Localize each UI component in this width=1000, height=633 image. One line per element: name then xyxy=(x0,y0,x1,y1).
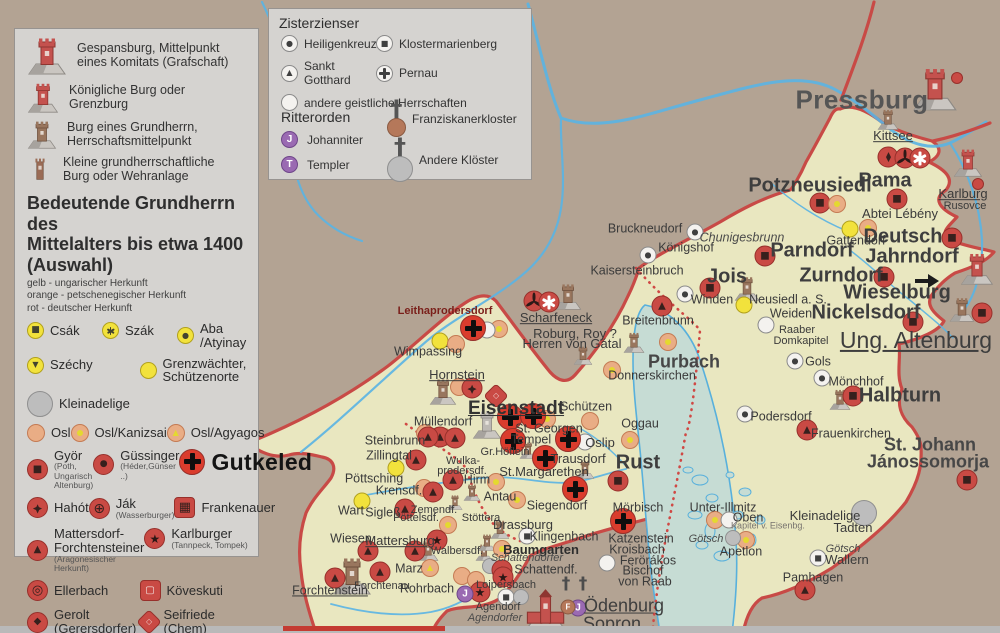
r-tri-marker: ▲ xyxy=(797,420,818,441)
knights-block: Ritterorden JJohanniterTTempler xyxy=(281,109,363,181)
w-sq-marker: ■ xyxy=(810,550,827,567)
monastery-entry-label: Franziskanerkloster xyxy=(412,112,517,126)
bottom-red-segment xyxy=(283,626,445,631)
knights-entry-johanniter: JJohanniter xyxy=(281,131,363,148)
legend-castle-item: Kleine grundherrschaftliche Burg oder We… xyxy=(27,155,250,183)
legend-lords-row: ■CsákSzák●Aba /Atyinay xyxy=(27,322,252,349)
o-marker xyxy=(447,335,465,353)
gray-marker xyxy=(513,589,529,605)
knights-entry-label: Templer xyxy=(307,158,350,172)
r-dot-icon: ● xyxy=(93,454,114,475)
o-marker xyxy=(581,412,599,430)
r-tri-marker: ▲ xyxy=(370,562,391,583)
orders-entry-label: Pernau xyxy=(399,66,438,80)
o-icon xyxy=(27,424,45,442)
gray-lg-marker xyxy=(851,500,877,526)
r-plain-marker xyxy=(951,72,963,84)
w-marker xyxy=(758,317,775,334)
castle-red-icon xyxy=(912,65,958,111)
r-sq-marker: ■ xyxy=(874,267,895,288)
legend-entry-frankenauer: ▦Frankenauer xyxy=(174,497,275,518)
o-dot-icon xyxy=(71,424,89,442)
o-dot-marker xyxy=(828,195,846,213)
orders-entry-pernau: Pernau xyxy=(376,59,531,87)
lords-title-line1: Bedeutende Grundherrn des xyxy=(27,193,235,234)
r-cross-marker xyxy=(460,315,486,341)
orders-entry-sankt-gotthard: ▲Sankt Gotthard xyxy=(281,59,376,87)
p-j-marker: J xyxy=(457,586,474,603)
legend-lords-row: Kleinadelige xyxy=(27,391,252,417)
r-tri-marker: ▲ xyxy=(445,428,466,449)
legend-entry-cs-k: ■Csák xyxy=(27,322,102,339)
legend-castle-item: Gespansburg, Mittelpunkt eines Komitats … xyxy=(27,35,250,75)
castle-red xyxy=(27,81,59,113)
y-marker xyxy=(388,460,405,477)
legend-entry-kleinadelige: Kleinadelige xyxy=(27,391,252,417)
r-cross-icon xyxy=(179,449,205,475)
legend-entry-label: Osl/Kanizsai xyxy=(95,425,167,440)
w-sq-marker: ■ xyxy=(519,528,536,545)
o-dot-marker xyxy=(493,540,511,558)
legend-entry-label: Gutkeled xyxy=(211,449,312,475)
knights-entry-label: Johanniter xyxy=(307,133,363,147)
legend-castle-label: Burg eines Grundherrn, Herrschaftsmittel… xyxy=(67,120,237,148)
r-cross-marker xyxy=(555,426,581,452)
orders-entry-klostermarienberg: ■Klostermarienberg xyxy=(376,35,531,52)
r-star-marker: ★ xyxy=(427,530,448,551)
o-dot-marker xyxy=(659,333,677,351)
br-f-marker: F xyxy=(561,600,576,615)
y-marker xyxy=(354,493,371,510)
r-cross-marker xyxy=(500,428,526,454)
knights-title: Ritterorden xyxy=(281,109,363,125)
legend-entry-j-k: ⊕Ják(Wasserburger) xyxy=(89,497,175,520)
legend-entry-sublabel: (Aragonesischer Herkunft) xyxy=(54,555,144,574)
w-marker xyxy=(599,555,616,572)
y-dot-icon: ● xyxy=(177,327,194,344)
legend-entry-osl-agyagos: ▲Osl/Agyagos xyxy=(167,424,265,442)
legend-entry-hah-t: ◆◆Hahót xyxy=(27,497,89,518)
rsq-wsq-icon: ▢ xyxy=(140,580,161,601)
w-cross-icon xyxy=(376,65,393,82)
legend-entry-mattersdorf-forchtensteiner: ▲Mattersdorf-Forchtensteiner(Aragonesisc… xyxy=(27,527,144,573)
orders-grid: ●Heiligenkreuz■Klostermarienberg▲Sankt G… xyxy=(281,35,531,87)
legend-entry-osl-kanizsai: Osl/Kanizsai xyxy=(71,424,167,442)
r-cross-marker xyxy=(520,403,546,429)
o-dot-marker xyxy=(859,219,877,237)
legend-lords-row: ◆Gerolt (Gerersdorfer)◇Seifriede (Chem) xyxy=(27,608,252,633)
legend-lords-row: ◎Ellerbach▢Köveskuti xyxy=(27,580,252,601)
gray-marker xyxy=(725,530,741,546)
w-dot-marker: ● xyxy=(687,224,704,241)
r-plain-marker xyxy=(972,178,984,190)
legend-lords-row: ■Györ(Poth, Ungarisch Altenburg)●Güssing… xyxy=(27,449,252,491)
o-tri-icon: ▲ xyxy=(167,424,185,442)
legend-entry-label: Széchy xyxy=(50,357,93,372)
w-sq-icon: ■ xyxy=(376,35,393,52)
r-tri-marker: ▲ xyxy=(443,470,464,491)
r-star-icon: ★ xyxy=(144,528,165,549)
o-dot-marker xyxy=(508,491,526,509)
r-dia-icon: ◆ xyxy=(27,612,48,633)
legend-entry-sublabel: (Tannpeck, Tompek) xyxy=(171,541,247,550)
castle-brown xyxy=(27,119,57,149)
w-dot-marker: ● xyxy=(737,406,754,423)
orders-entry-label: Sankt Gotthard xyxy=(304,59,376,87)
legend-castle-item: Burg eines Grundherrn, Herrschaftsmittel… xyxy=(27,119,250,149)
castle-red-icon xyxy=(960,251,994,285)
r-tri-marker: ▲ xyxy=(325,568,346,589)
r-tri-marker: ▲ xyxy=(405,541,426,562)
r-rings-icon: ◎ xyxy=(27,580,48,601)
legend-entry-seifriede-chem-: ◇Seifriede (Chem) xyxy=(140,608,253,633)
legend-entry-label: Osl/Agyagos xyxy=(191,425,265,440)
legend-entry-label: Csák xyxy=(50,323,80,338)
r-sq-marker: ■ xyxy=(700,278,721,299)
r-4-marker: ◆◆ xyxy=(462,378,483,399)
r-cross-marker xyxy=(532,445,558,471)
legend-lords-row: OslOsl/Kanizsai▲Osl/Agyagos xyxy=(27,424,252,442)
gray-lg-icon xyxy=(27,391,53,417)
legend-lords-rows: ■CsákSzák●Aba /Atyinay▼SzéchyGrenzwächte… xyxy=(15,322,258,633)
legend-entry-karlburger: ★Karlburger(Tannpeck, Tompek) xyxy=(144,527,252,550)
monastery-entry-andere-kl-ster: †Andere Klöster xyxy=(387,139,517,182)
legend-entry-label: Osl xyxy=(51,425,71,440)
legend-entry-grenzw-chter-sch-tzenorte: Grenzwächter, Schützenorte xyxy=(140,357,253,384)
r-sq-icon: ■ xyxy=(27,459,48,480)
o-dot-marker xyxy=(621,431,639,449)
p-j-icon: J xyxy=(281,131,298,148)
legend-entry-k-veskuti: ▢Köveskuti xyxy=(140,580,253,601)
w-sq-marker: ■ xyxy=(498,589,515,606)
legend-castle-label: Kleine grundherrschaftliche Burg oder We… xyxy=(63,155,233,183)
r-sq-marker: ■ xyxy=(903,312,924,333)
legend-entry-label: Ellerbach xyxy=(54,583,108,598)
monastery-cross-icon: † xyxy=(391,101,403,118)
xc-marker: † xyxy=(562,574,571,594)
y-marker xyxy=(432,333,449,350)
legend-entry-label: Frankenauer xyxy=(201,500,275,515)
r-cross-marker xyxy=(610,508,636,534)
orders-title: Zisterzienser xyxy=(279,15,531,31)
r-sq-marker: ■ xyxy=(887,189,908,210)
monastery-cross-icon: † xyxy=(394,139,406,156)
y-icon xyxy=(140,362,157,379)
tower-brown xyxy=(27,156,53,182)
w-dot-marker: ● xyxy=(640,247,657,264)
r-cross-marker xyxy=(562,476,588,502)
w-dot-icon: ● xyxy=(281,35,298,52)
castle-red-icon xyxy=(953,147,983,177)
legend-lords-title: Bedeutende Grundherrn des Mittelalters b… xyxy=(27,193,248,276)
monastery-entry-label: Andere Klöster xyxy=(419,153,498,167)
y-marker xyxy=(736,297,753,314)
legend-castles-box: Gespansburg, Mittelpunkt eines Komitats … xyxy=(14,28,259,557)
legend-entry-sublabel: (Héder,Günser ..) xyxy=(120,462,179,481)
legend-entry-label: Seifriede (Chem) xyxy=(164,607,215,633)
legend-entry-gutkeled: Gutkeled xyxy=(179,449,312,475)
legend-entry-label: Gerolt (Gerersdorfer) xyxy=(54,607,136,633)
y-marker xyxy=(842,221,859,238)
legend-entry-ellerbach: ◎Ellerbach xyxy=(27,580,140,601)
legend-castle-item: Königliche Burg oder Grenzburg xyxy=(27,81,250,113)
r-star-marker: ★ xyxy=(493,567,514,588)
color-note-orange: orange - petschenegischer Herkunft xyxy=(27,290,246,303)
r-tri-marker: ▲ xyxy=(423,482,444,503)
y-tri-icon: ▼ xyxy=(27,357,44,374)
legend-castle-items: Gespansburg, Mittelpunkt eines Komitats … xyxy=(15,35,258,183)
r-sq-marker: ■ xyxy=(755,246,776,267)
arrow-marker xyxy=(914,274,940,288)
orders-entry-label: Klostermarienberg xyxy=(399,37,497,51)
r-sq-marker: ■ xyxy=(608,471,629,492)
r-tri-icon: ▲ xyxy=(27,540,48,561)
r-wast-marker xyxy=(539,292,560,313)
w-dot-marker: ● xyxy=(677,286,694,303)
legend-entry-label: Szák xyxy=(125,323,154,338)
legend-entry-label: Aba /Atyinay xyxy=(200,321,246,350)
legend-entry-gy-r: ■Györ(Poth, Ungarisch Altenburg) xyxy=(27,449,93,491)
r-tri-marker: ▲ xyxy=(358,541,379,562)
legend-entry-label: Köveskuti xyxy=(167,583,223,598)
knights-entry-templer: TTempler xyxy=(281,156,363,173)
castle-brown-icon xyxy=(573,345,593,365)
legend-orders-box: Zisterzienser ●Heiligenkreuz■Klostermari… xyxy=(268,8,532,180)
legend-entry-label: Grenzwächter, Schützenorte xyxy=(163,356,247,385)
legend-lords-row: ▲Mattersdorf-Forchtensteiner(Aragonesisc… xyxy=(27,527,252,573)
castle-brown-icon xyxy=(877,108,899,130)
legend-castle-label: Königliche Burg oder Grenzburg xyxy=(69,83,239,111)
w-tri-icon: ▲ xyxy=(281,65,298,82)
r-tri-marker: ▲ xyxy=(395,499,416,520)
knights-items: JJohanniterTTempler xyxy=(281,131,363,173)
legend-entry-g-ssinger: ●Güssinger(Héder,Günser ..) xyxy=(93,449,179,481)
monastery-entry-franziskanerkloster: †Franziskanerkloster xyxy=(387,101,517,137)
r-wast-marker xyxy=(910,148,931,169)
o-tri-marker: ▲ xyxy=(421,559,439,577)
r-4-icon: ◆◆ xyxy=(27,497,48,518)
o-dot-marker xyxy=(603,361,621,379)
historical-map-screenshot: ††◆■■■■■■■■■■■●●●●●●■■■▲▲▲▲▲▲▲▲▲▲▲▲▲▲▲★★… xyxy=(0,0,1000,633)
r-sq-marker: ■ xyxy=(957,470,978,491)
legend-entry-sublabel: (Wasserburger) xyxy=(116,511,175,520)
r-sq-marker: ■ xyxy=(843,386,864,407)
legend-lords-row: ◆◆Hahót⊕Ják(Wasserburger)▦Frankenauer xyxy=(27,497,252,520)
w-dot-marker: ● xyxy=(814,370,831,387)
color-note-yellow: gelb - ungarischer Herkunft xyxy=(27,278,246,291)
rdia-dia-icon: ◇ xyxy=(136,609,161,633)
legend-entry-gerolt-gerersdorfer-: ◆Gerolt (Gerersdorfer) xyxy=(27,608,140,633)
r-tri-marker: ▲ xyxy=(652,296,673,317)
y-sq-icon: ■ xyxy=(27,322,44,339)
monasteries-block: †Franziskanerkloster†Andere Klöster xyxy=(387,101,517,184)
r-tri-marker: ▲ xyxy=(406,450,427,471)
r-tri-marker: ▲ xyxy=(795,580,816,601)
orders-entry-label: Heiligenkreuz xyxy=(304,37,377,51)
legend-lords-row: ▼SzéchyGrenzwächter, Schützenorte xyxy=(27,357,252,384)
r-tri-marker: ▲ xyxy=(418,427,439,448)
orders-entry-heiligenkreuz: ●Heiligenkreuz xyxy=(281,35,376,52)
w-marker xyxy=(721,512,738,529)
w-dot-marker: ● xyxy=(787,353,804,370)
legend-castle-label: Gespansburg, Mittelpunkt eines Komitats … xyxy=(77,41,247,69)
legend-entry-label: Mattersdorf-Forchtensteiner xyxy=(54,526,144,555)
rsq-grid-icon: ▦ xyxy=(174,497,195,518)
xc-marker: † xyxy=(579,574,588,594)
castle-brown-icon xyxy=(463,483,481,501)
r-oplus-icon: ⊕ xyxy=(89,498,110,519)
o-dot-marker xyxy=(487,473,505,491)
castle-brown-icon xyxy=(623,331,645,353)
castle-red-large xyxy=(27,35,67,75)
legend-entry-label: Kleinadelige xyxy=(59,396,130,411)
legend-entry-osl: Osl xyxy=(27,424,71,442)
castle-brown-icon xyxy=(447,494,463,510)
legend-entry-label: Hahót xyxy=(54,500,89,515)
color-note-red: rot - deutscher Herkunft xyxy=(27,303,246,316)
legend-entry-aba-atyinay: ●Aba /Atyinay xyxy=(177,322,252,349)
legend-entry-sz-k: Szák xyxy=(102,322,177,339)
legend-entry-sz-chy: ▼Széchy xyxy=(27,357,140,374)
gray-lg-icon xyxy=(387,156,413,182)
r-sq-marker: ■ xyxy=(972,303,993,324)
p-t-icon: T xyxy=(281,156,298,173)
r-sq-marker: ■ xyxy=(942,228,963,249)
legend-entry-sublabel: (Poth, Ungarisch Altenburg) xyxy=(54,462,93,490)
y-ast-icon xyxy=(102,322,119,339)
lords-title-line2: Mittelalters bis etwa 1400 (Auswahl) xyxy=(27,234,243,275)
